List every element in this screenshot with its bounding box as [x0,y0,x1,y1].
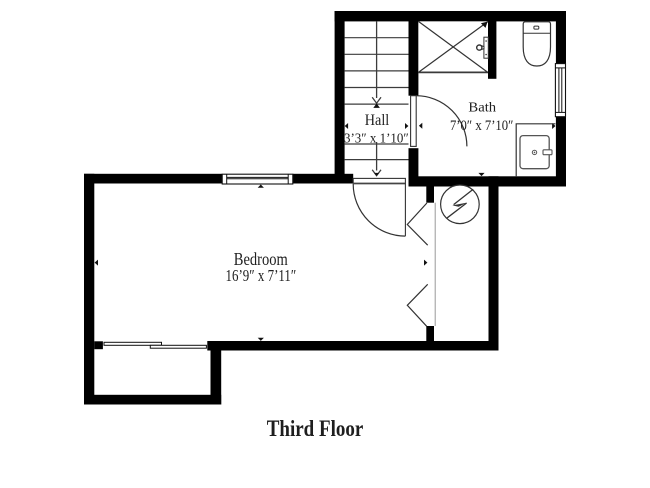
svg-text:7’0″ x 7’10″: 7’0″ x 7’10″ [450,118,514,134]
svg-text:16’9″ x 7’11″: 16’9″ x 7’11″ [226,266,297,285]
svg-text:3’3″ x 1’10″: 3’3″ x 1’10″ [344,131,409,146]
svg-text:Bath: Bath [468,100,496,115]
svg-text:Third Floor: Third Floor [267,416,364,441]
svg-text:Hall: Hall [365,112,390,129]
